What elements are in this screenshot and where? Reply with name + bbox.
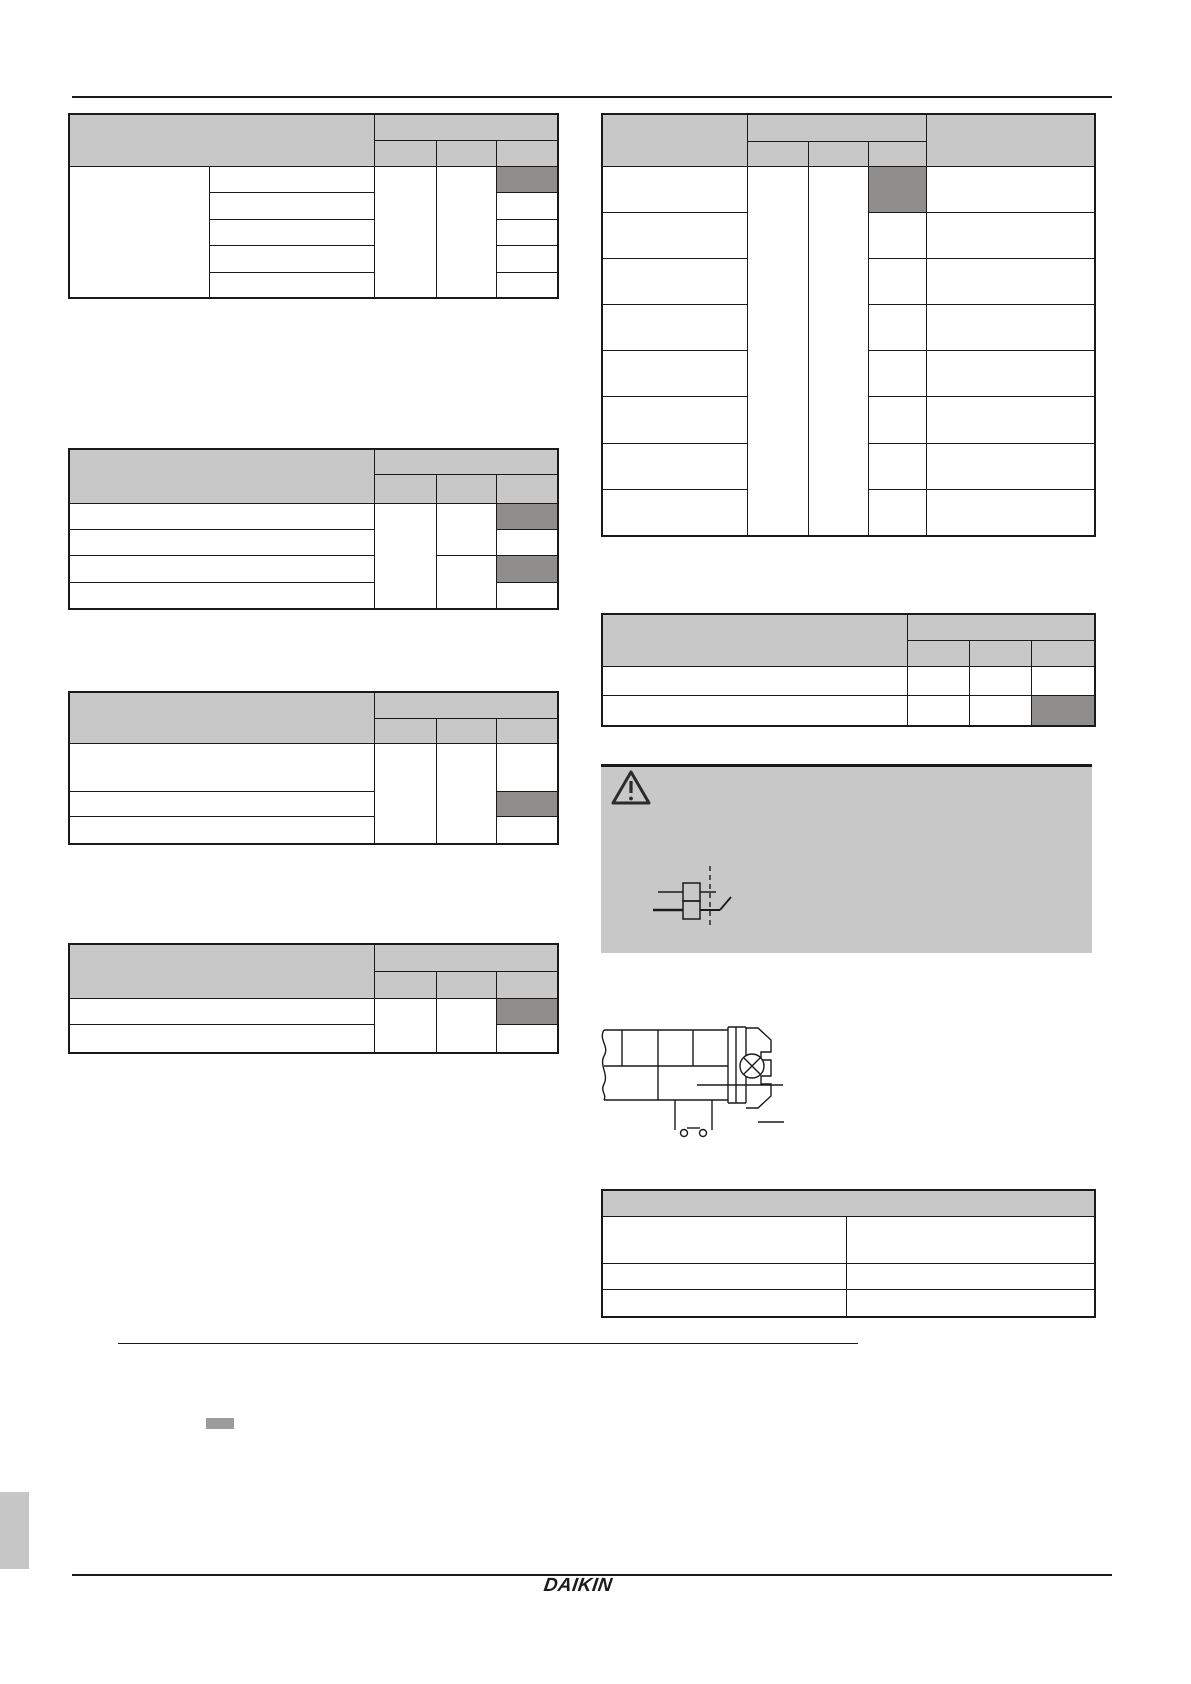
warning-box [601,764,1092,953]
table-cell [70,792,375,817]
table-cell [847,1217,1094,1264]
table-cell [210,193,375,220]
table-cell [603,444,748,490]
table-cell [927,490,1094,535]
spec-table-5 [601,113,1096,537]
table-cell [497,744,557,792]
spec-table-6 [601,613,1096,727]
table-cell [210,220,375,246]
table-cell [847,1264,1094,1290]
spec-table-1 [68,113,559,299]
table-cell [908,667,970,696]
page-marker [206,1418,234,1429]
table-cell [70,167,210,297]
table-cell [603,351,748,397]
table-cell [437,167,497,297]
header-cell [603,615,908,667]
table-cell [927,397,1094,444]
table-cell [70,744,375,792]
table-cell [748,167,809,535]
highlighted-cell [497,556,557,583]
table-cell [603,305,748,351]
header-cell [437,475,497,504]
table-cell [70,530,375,556]
header-cell [908,641,970,667]
table-cell [210,273,375,297]
header-cell [497,141,557,167]
header-cell [375,693,557,719]
table-cell [437,556,497,608]
section-divider-rule [118,1343,858,1344]
warning-triangle-icon [611,770,651,806]
header-cell [927,115,1094,167]
table-cell [210,246,375,273]
table-cell [497,583,557,608]
table-cell [908,696,970,725]
spec-table-4 [68,943,559,1054]
header-cell [603,1191,1094,1217]
spec-table-3 [68,691,559,845]
header-cell [437,719,497,744]
breaker-switch-icon [648,858,743,933]
screw-terminal-figure [595,1022,800,1147]
highlighted-cell [497,504,557,530]
table-cell [927,213,1094,259]
table-cell [497,193,557,220]
header-cell [970,641,1032,667]
table-cell [603,667,908,696]
table-cell [603,1264,847,1290]
header-cell [869,142,927,167]
header-cell [375,450,557,475]
table-cell [869,305,927,351]
table-cell [70,583,375,608]
header-cell [437,141,497,167]
table-cell [927,259,1094,305]
table-cell [375,504,437,608]
header-cell [497,475,557,504]
table-cell [603,490,748,535]
header-cell [809,142,869,167]
table-cell [437,999,497,1052]
table-cell [210,167,375,193]
table-cell [375,999,437,1052]
table-cell [497,246,557,273]
table-cell [603,1290,847,1316]
header-cell [375,945,557,972]
table-cell [603,397,748,444]
header-cell [603,115,748,167]
header-cell [437,972,497,999]
table-cell [70,999,375,1025]
table-cell [70,504,375,530]
table-cell [847,1290,1094,1316]
table-cell [497,1025,557,1052]
table-cell [809,167,869,535]
header-cell [748,115,927,142]
highlighted-cell [1032,696,1094,725]
table-cell [603,1217,847,1264]
table-cell [603,167,748,213]
header-cell [1032,641,1094,667]
table-cell [70,556,375,583]
table-cell [869,213,927,259]
header-cell [375,475,437,504]
table-cell [603,696,908,725]
header-cell [375,115,557,141]
table-cell [869,397,927,444]
document-page: DAIKIN [0,0,1191,1684]
header-cell [375,719,437,744]
table-cell [375,744,437,843]
table-cell [70,817,375,843]
table-cell [869,351,927,397]
table-cell [497,220,557,246]
top-rule [72,96,1112,98]
table-cell [603,213,748,259]
daikin-logo: DAIKIN [528,1575,627,1597]
header-cell [497,719,557,744]
header-cell [70,450,375,504]
highlighted-cell [497,167,557,193]
header-cell [70,945,375,999]
table-cell [375,167,437,297]
table-cell [497,530,557,556]
header-cell [497,972,557,999]
table-cell [70,1025,375,1052]
table-cell [927,167,1094,213]
spec-table-7 [601,1189,1096,1318]
header-cell [70,693,375,744]
header-cell [375,972,437,999]
header-cell [375,141,437,167]
spec-table-2 [68,448,559,610]
table-cell [869,444,927,490]
table-cell [1032,667,1094,696]
table-cell [970,696,1032,725]
header-cell [748,142,809,167]
side-tab [0,1492,29,1569]
table-cell [927,444,1094,490]
table-cell [927,351,1094,397]
table-cell [437,744,497,843]
table-cell [437,504,497,556]
bottom-rule [72,1574,1112,1576]
table-cell [869,490,927,535]
table-cell [927,305,1094,351]
header-cell [70,115,375,167]
table-cell [603,259,748,305]
highlighted-cell [497,792,557,817]
table-cell [497,273,557,297]
highlighted-cell [869,167,927,213]
highlighted-cell [497,999,557,1025]
table-cell [497,817,557,843]
table-cell [970,667,1032,696]
table-cell [869,259,927,305]
header-cell [908,615,1094,641]
